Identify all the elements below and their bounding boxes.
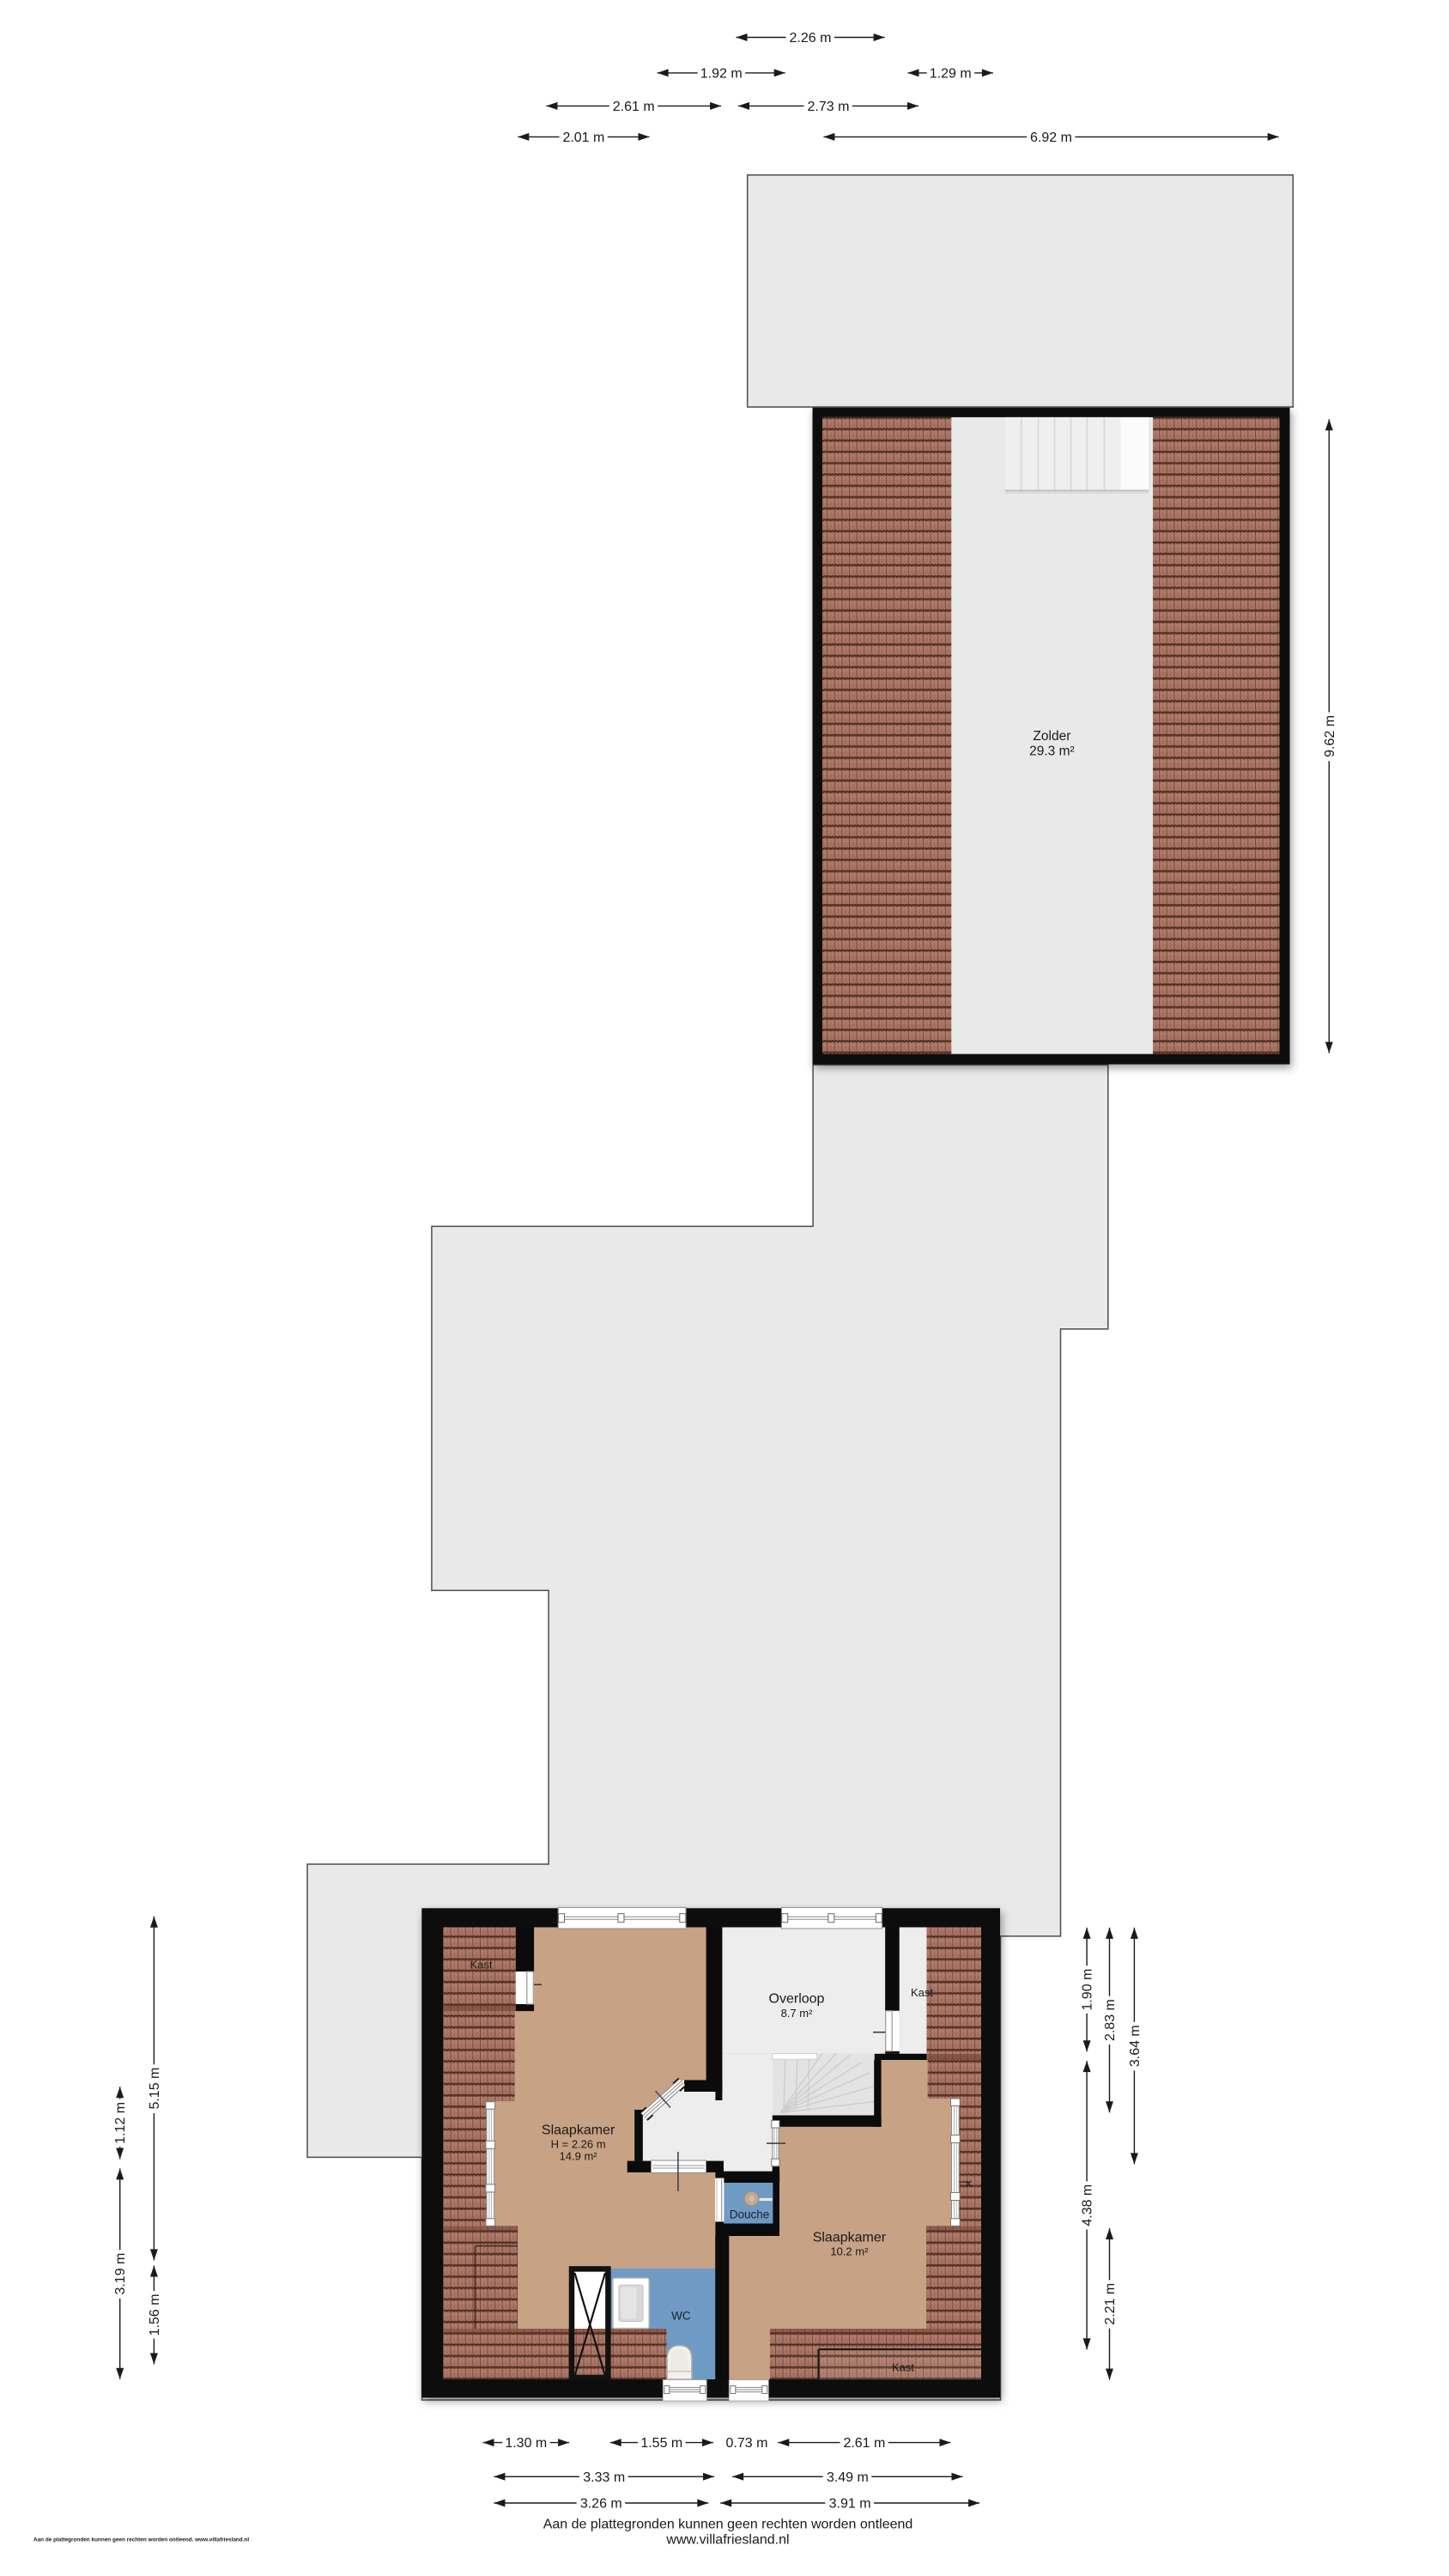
- svg-text:1.12 m: 1.12 m: [113, 2102, 128, 2144]
- svg-text:Aan de plattegronden kunnen ge: Aan de plattegronden kunnen geen rechten…: [543, 2518, 913, 2532]
- svg-text:3.91 m: 3.91 m: [829, 2497, 871, 2512]
- svg-text:10.2 m²: 10.2 m²: [830, 2245, 869, 2258]
- svg-text:Slaapkamer: Slaapkamer: [542, 2123, 615, 2138]
- svg-text:6.92 m: 6.92 m: [1030, 131, 1072, 145]
- svg-text:2.21 m: 2.21 m: [1103, 2283, 1118, 2325]
- svg-text:Slaapkamer: Slaapkamer: [813, 2231, 887, 2245]
- svg-text:4.38 m: 4.38 m: [1081, 2184, 1095, 2227]
- svg-text:3.49 m: 3.49 m: [827, 2470, 869, 2485]
- svg-text:Overloop: Overloop: [769, 1992, 825, 2007]
- svg-text:2.26 m: 2.26 m: [790, 31, 832, 46]
- svg-text:3.26 m: 3.26 m: [580, 2497, 622, 2512]
- svg-text:14.9 m²: 14.9 m²: [560, 2150, 598, 2163]
- svg-text:Zolder: Zolder: [1033, 729, 1070, 744]
- svg-text:3.33 m: 3.33 m: [583, 2470, 625, 2485]
- svg-text:Douche: Douche: [730, 2208, 770, 2221]
- svg-text:9.62 m: 9.62 m: [1323, 715, 1337, 757]
- svg-text:1.29 m: 1.29 m: [930, 66, 972, 81]
- svg-text:WC: WC: [671, 2310, 691, 2323]
- svg-text:1.55 m: 1.55 m: [640, 2436, 682, 2451]
- svg-text:Aan de plattegronden kunnen ge: Aan de plattegronden kunnen geen rechten…: [33, 2537, 249, 2543]
- svg-text:1.90 m: 1.90 m: [1081, 1969, 1095, 2011]
- svg-text:2.61 m: 2.61 m: [843, 2436, 885, 2451]
- svg-text:www.villafriesland.nl: www.villafriesland.nl: [665, 2533, 789, 2548]
- svg-text:29.3 m²: 29.3 m²: [1029, 744, 1075, 759]
- svg-text:K: K: [966, 2179, 973, 2190]
- svg-text:1.92 m: 1.92 m: [700, 66, 743, 81]
- svg-text:0.73 m: 0.73 m: [726, 2436, 768, 2451]
- svg-text:5.15 m: 5.15 m: [148, 2068, 162, 2110]
- svg-text:1.56 m: 1.56 m: [148, 2293, 162, 2336]
- svg-text:2.61 m: 2.61 m: [613, 100, 655, 114]
- svg-text:Kast: Kast: [470, 1959, 492, 1971]
- svg-text:2.73 m: 2.73 m: [808, 100, 850, 114]
- svg-text:2.83 m: 2.83 m: [1103, 1999, 1118, 2041]
- svg-text:1.30 m: 1.30 m: [505, 2436, 547, 2451]
- svg-text:3.19 m: 3.19 m: [113, 2253, 128, 2295]
- svg-text:8.7 m²: 8.7 m²: [781, 2007, 814, 2020]
- svg-text:Kast: Kast: [911, 1986, 933, 1999]
- svg-text:Kast: Kast: [892, 2361, 914, 2374]
- svg-text:2.01 m: 2.01 m: [562, 131, 604, 145]
- svg-text:H = 2.26 m: H = 2.26 m: [551, 2138, 606, 2151]
- svg-text:3.64 m: 3.64 m: [1128, 2025, 1143, 2067]
